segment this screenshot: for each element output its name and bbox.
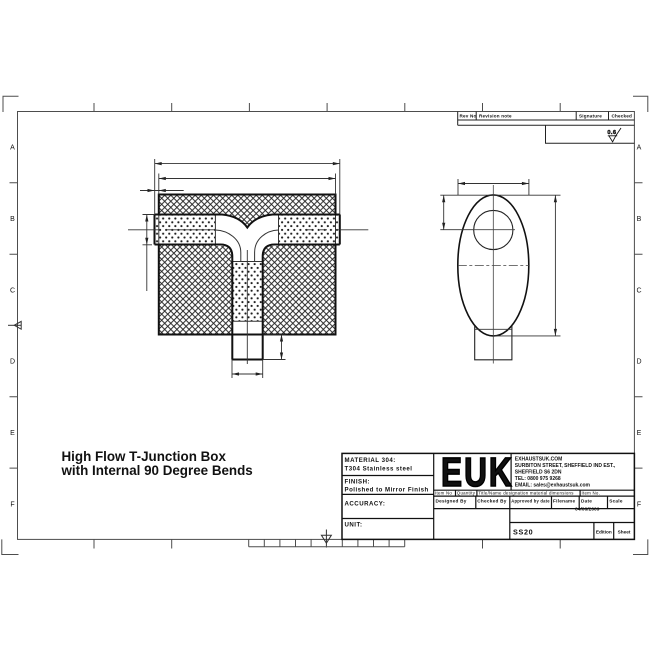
svg-text:Approved by date: Approved by date: [511, 498, 550, 503]
svg-text:F: F: [10, 501, 14, 508]
svg-text:SS20: SS20: [513, 528, 533, 537]
svg-text:Edition: Edition: [596, 529, 612, 534]
svg-text:EUK: EUK: [441, 449, 514, 495]
svg-text:Title/Name designation materia: Title/Name designation material dimensio…: [478, 491, 574, 496]
svg-text:E: E: [637, 430, 642, 437]
svg-text:B: B: [637, 216, 642, 223]
svg-text:Signature: Signature: [579, 114, 602, 119]
svg-text:Scale: Scale: [609, 498, 623, 503]
svg-text:Quantity: Quantity: [457, 491, 476, 496]
svg-text:MATERIAL 304:: MATERIAL 304:: [345, 457, 396, 464]
svg-text:C: C: [636, 287, 641, 294]
svg-text:EMAIL: sales@exhaustsuk.com: EMAIL: sales@exhaustsuk.com: [515, 482, 591, 488]
svg-text:A: A: [637, 145, 642, 152]
svg-text:D: D: [636, 359, 641, 366]
svg-text:D: D: [10, 359, 15, 366]
svg-text:ACCURACY:: ACCURACY:: [345, 501, 386, 508]
svg-text:UNIT:: UNIT:: [345, 522, 363, 529]
svg-text:C: C: [10, 287, 15, 294]
svg-text:F: F: [637, 501, 641, 508]
svg-text:FINISH:: FINISH:: [345, 479, 371, 486]
svg-text:Revision note: Revision note: [479, 114, 512, 119]
svg-text:Filename: Filename: [553, 498, 575, 503]
svg-text:EXHAUSTSUK.COM: EXHAUSTSUK.COM: [515, 456, 563, 462]
svg-text:T304 Stainless steel: T304 Stainless steel: [345, 466, 413, 473]
svg-text:B: B: [10, 216, 15, 223]
svg-text:SHEFFIELD S6 2DN: SHEFFIELD S6 2DN: [515, 469, 562, 475]
svg-text:Sheet: Sheet: [618, 529, 631, 534]
svg-text:E: E: [10, 430, 15, 437]
svg-text:A: A: [10, 145, 15, 152]
svg-text:with Internal 90 Degree Bends: with Internal 90 Degree Bends: [61, 463, 253, 478]
svg-text:Designed By: Designed By: [436, 498, 467, 503]
svg-text:Item No.: Item No.: [582, 491, 601, 496]
svg-text:04/06/2009: 04/06/2009: [575, 507, 600, 513]
svg-text:0.6: 0.6: [607, 130, 616, 136]
svg-text:Checked: Checked: [612, 114, 633, 119]
svg-text:TEL: 0800 975 9268: TEL: 0800 975 9268: [515, 476, 561, 482]
svg-text:Checked By: Checked By: [477, 498, 506, 503]
svg-text:SURBITON STREET, SHEFFIELD IND: SURBITON STREET, SHEFFIELD IND EST.,: [515, 463, 616, 469]
svg-text:Rev No: Rev No: [460, 114, 477, 119]
svg-text:Date: Date: [581, 498, 592, 503]
svg-text:Polished to Mirror Finish: Polished to Mirror Finish: [345, 486, 429, 493]
svg-text:Item No: Item No: [435, 491, 452, 496]
